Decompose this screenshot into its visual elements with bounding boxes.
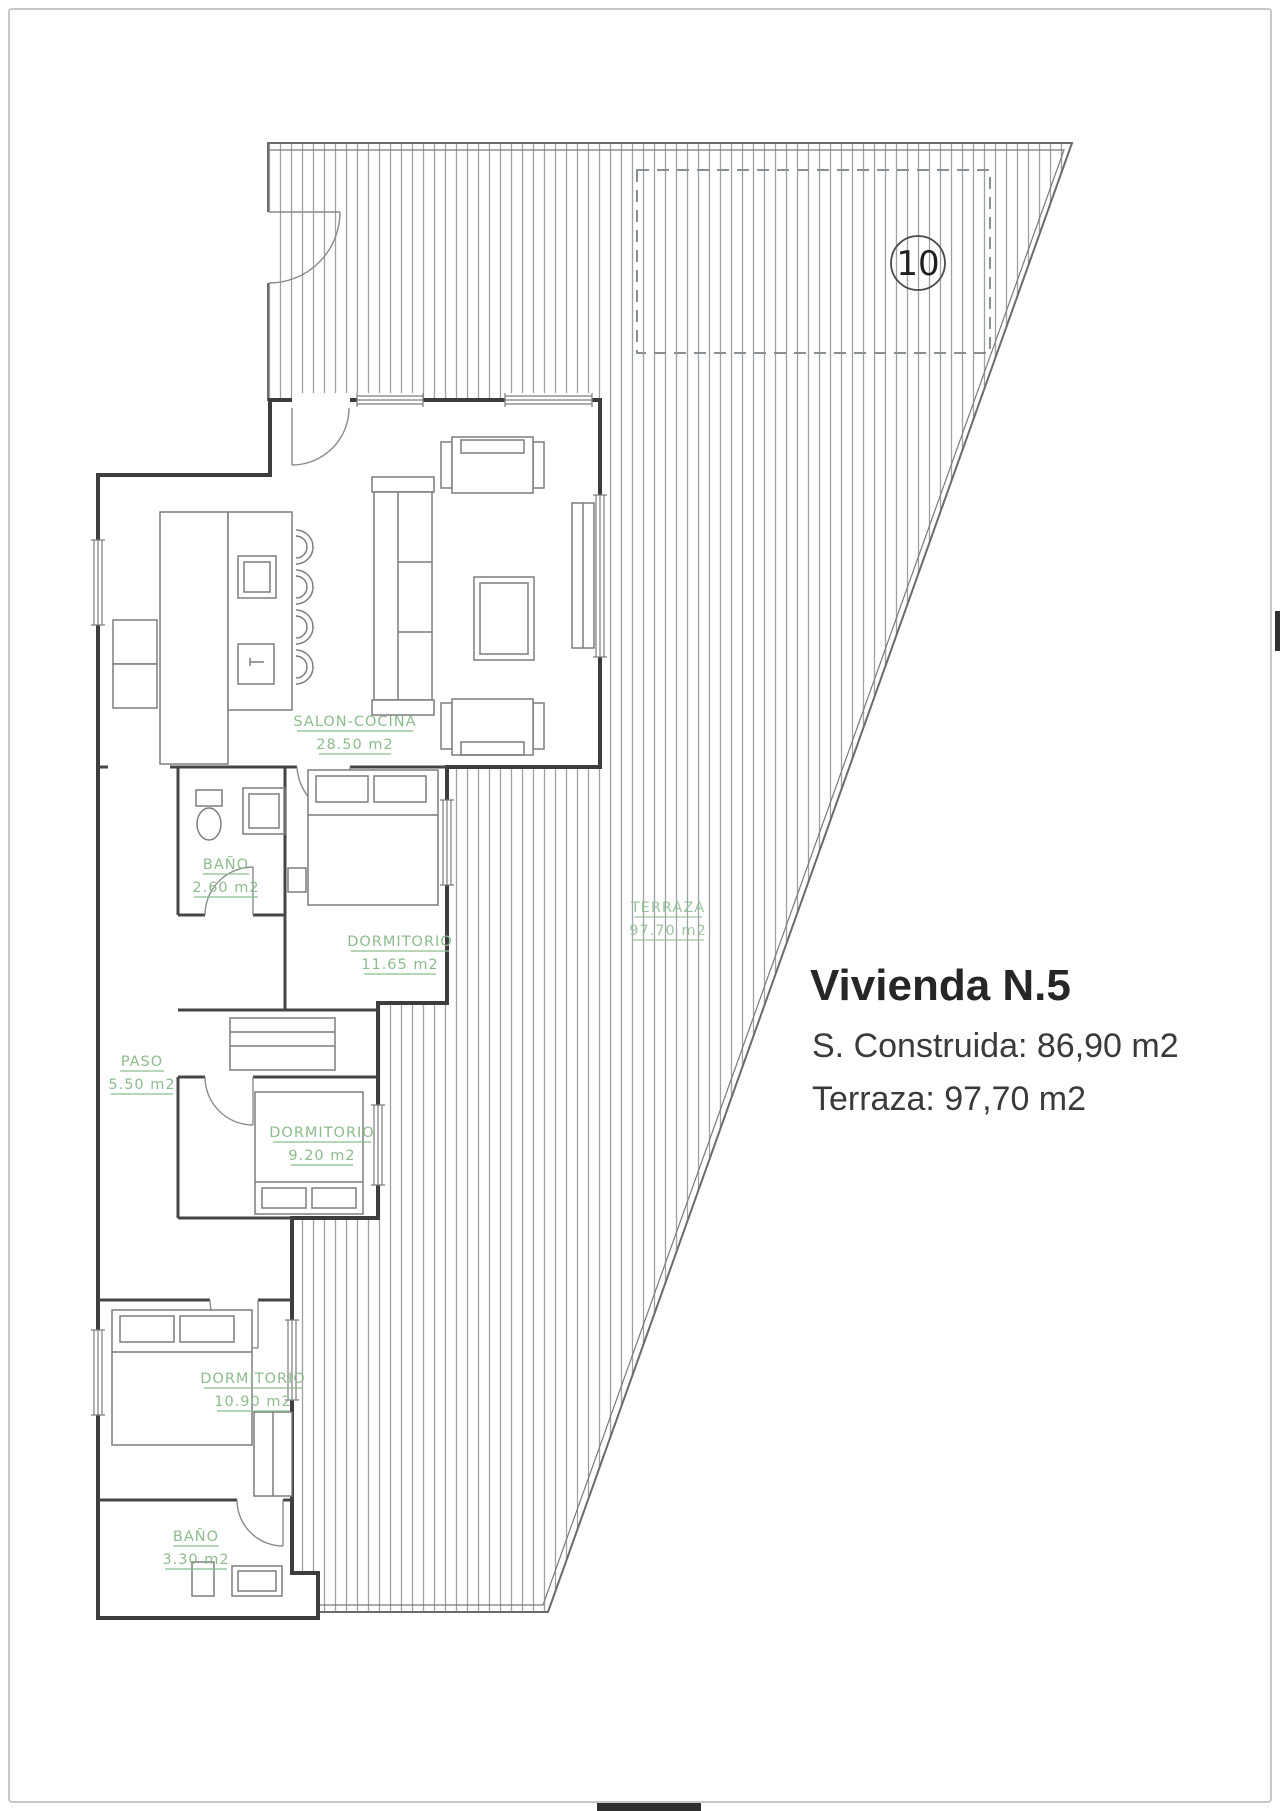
room-area-banyo1: 2.60 m2 — [192, 880, 259, 896]
page-edge-mark-right — [1275, 611, 1280, 651]
kitchen-appliance — [113, 664, 157, 708]
room-area-salon: 28.50 m2 — [316, 737, 393, 753]
armchair — [441, 699, 544, 755]
room-area-dorm2: 9.20 m2 — [288, 1148, 355, 1164]
coffee-table — [474, 577, 534, 660]
plot-number-label: 10 — [896, 244, 939, 284]
kitchen-appliance — [113, 620, 157, 664]
room-area-terraza: 97.70 m2 — [629, 923, 706, 939]
room-label-banyo1: BAÑO — [203, 856, 249, 873]
room-label-paso: PASO — [121, 1054, 163, 1070]
bed-dorm1 — [288, 770, 438, 905]
kitchen-counter — [160, 512, 228, 764]
room-area-paso: 5.50 m2 — [108, 1077, 175, 1093]
plan-title: Vivienda N.5 — [810, 961, 1071, 1010]
room-area-dorm3: 10.90 m2 — [214, 1394, 291, 1410]
entry-opening — [292, 393, 350, 407]
room-label-dorm3: DORMITORIO — [200, 1371, 305, 1387]
wardrobe — [230, 1018, 335, 1070]
room-area-banyo2: 3.30 m2 — [162, 1552, 229, 1568]
floor-plan-page: 10 — [0, 0, 1280, 1811]
floor-plan-svg: 10 — [0, 0, 1280, 1811]
room-label-dorm1: DORMITORIO — [347, 934, 452, 950]
room-label-terraza: TERRAZA — [630, 900, 705, 916]
room-area-dorm1: 11.65 m2 — [361, 957, 438, 973]
sofa — [372, 477, 434, 715]
info-panel: Vivienda N.5 S. Construida: 86,90 m2 Ter… — [810, 961, 1179, 1118]
gate-opening — [263, 212, 273, 283]
room-label-salon: SALON-COCINA — [293, 714, 416, 730]
page-edge-mark-bottom — [597, 1803, 701, 1811]
room-label-dorm2: DORMITORIO — [269, 1125, 374, 1141]
built-surface-line: S. Construida: 86,90 m2 — [812, 1027, 1179, 1065]
armchair — [441, 437, 544, 493]
room-label-banyo2: BAÑO — [173, 1528, 219, 1545]
terrace-surface-line: Terraza: 97,70 m2 — [812, 1080, 1086, 1118]
